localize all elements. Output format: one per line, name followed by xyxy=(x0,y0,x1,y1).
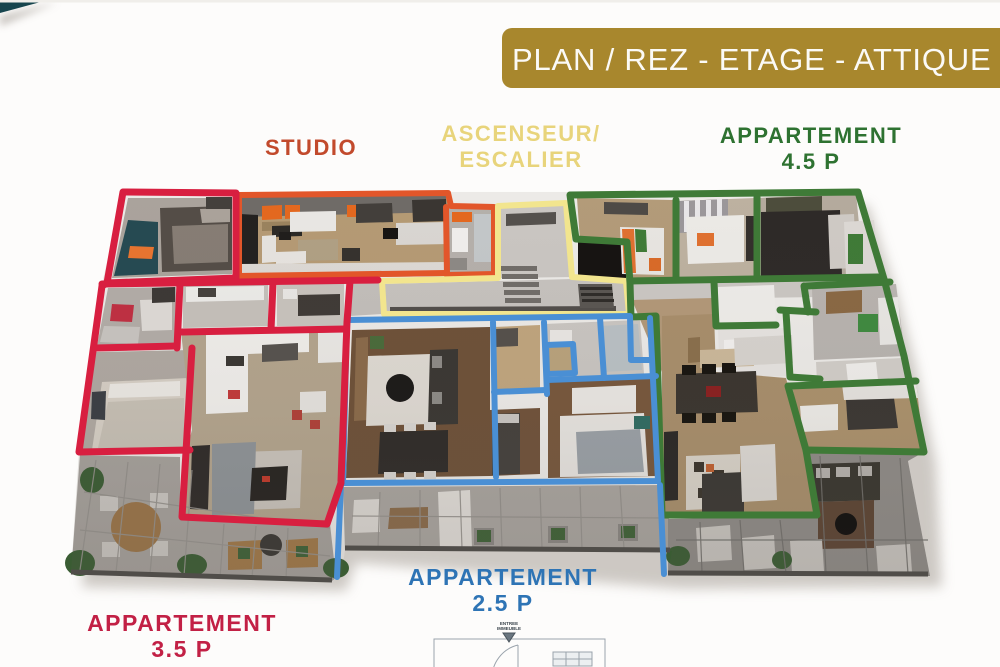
svg-text:IMMEUBLE: IMMEUBLE xyxy=(497,626,521,631)
